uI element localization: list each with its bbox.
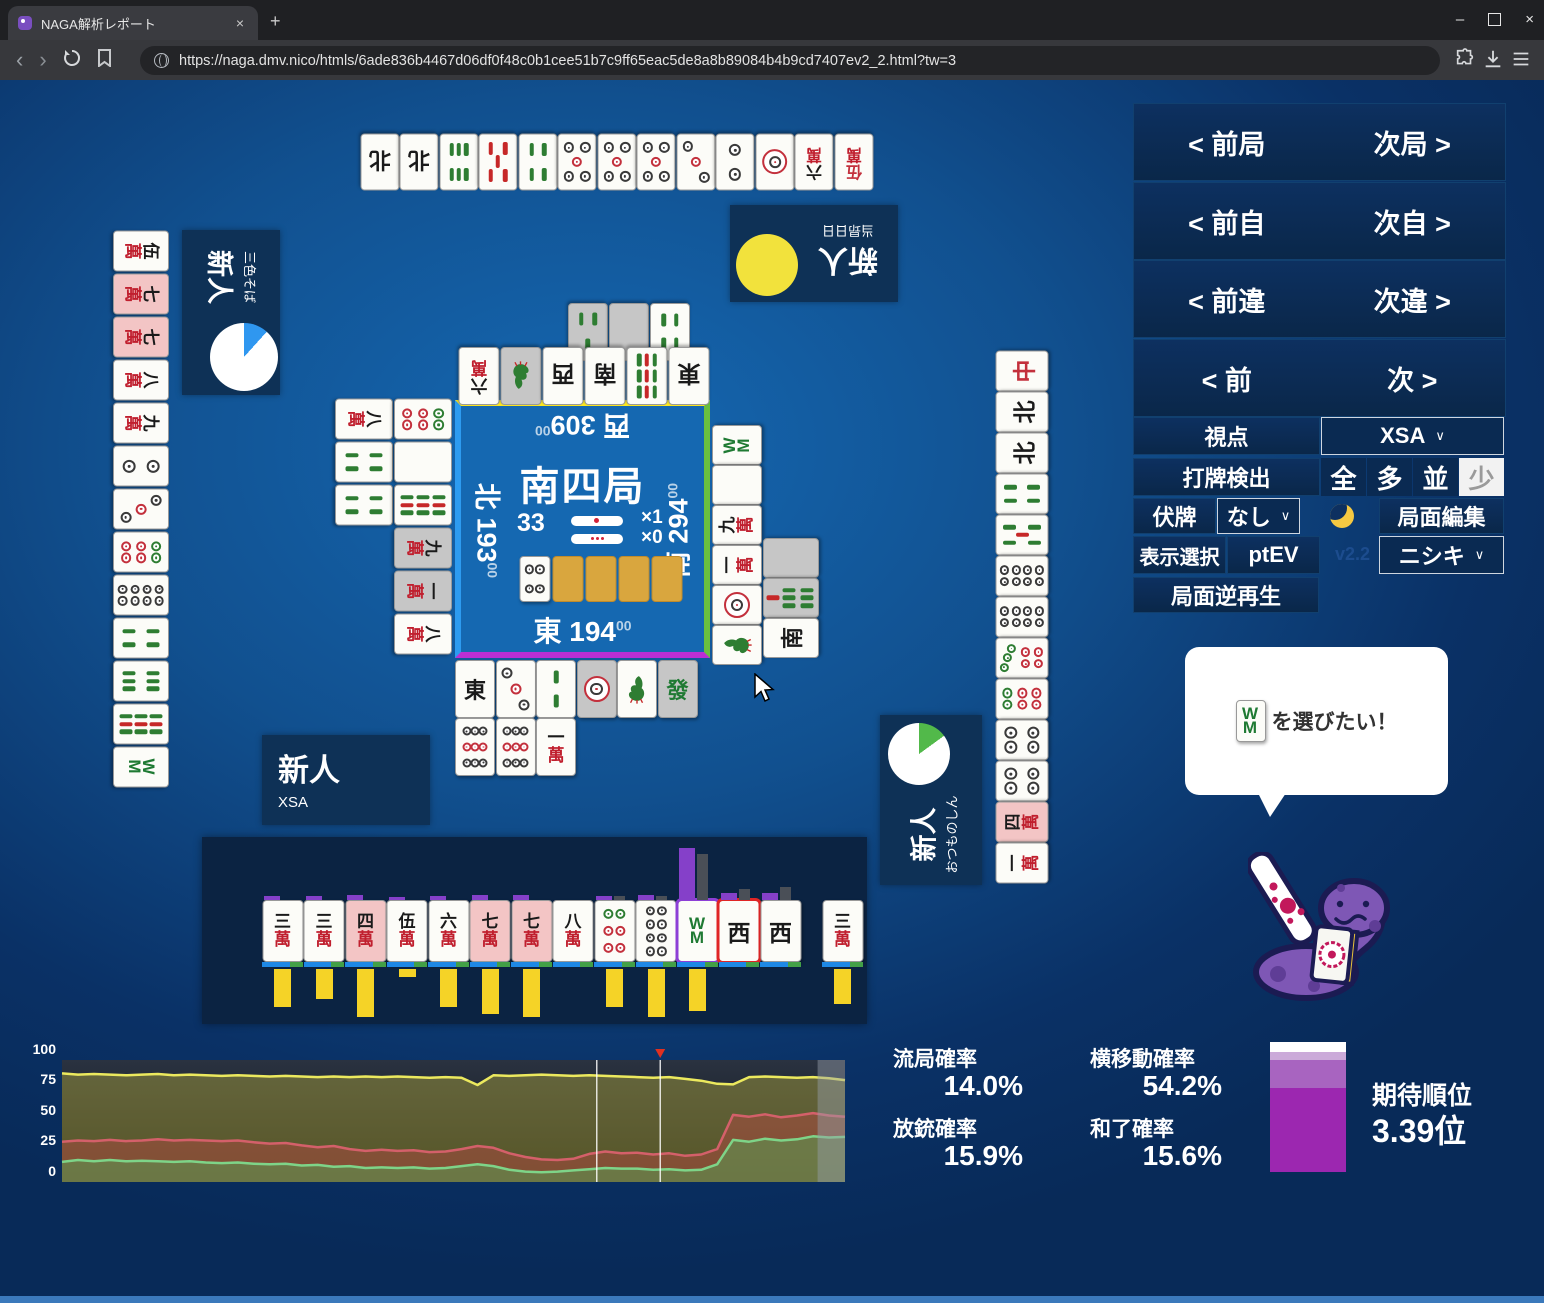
discard-probability-bar (399, 969, 416, 977)
player-top-label: 新人 当昻日日 (730, 205, 898, 302)
player-self-label: 新人 XSA (262, 735, 430, 825)
tile-underline-indicator (719, 962, 760, 967)
edit-position-button[interactable]: 局面編集 (1379, 498, 1504, 534)
mahjong-tile-9m: 九萬 (394, 527, 452, 568)
tile-underline-indicator (387, 962, 428, 967)
naga-comment-bubble: WM を選びたい！ (1185, 647, 1448, 795)
back-icon[interactable]: ‹ (16, 49, 23, 71)
mahjong-tile-5p (597, 133, 636, 190)
tile-underline-indicator (594, 962, 635, 967)
mahjong-tile-4s (518, 133, 557, 190)
address-bar[interactable]: https://naga.dmv.nico/htmls/6ade836b4467… (140, 46, 1440, 75)
center-info-panel: 西 30900 北 19300 南 29400 東 19400 南四局 33 ×… (455, 400, 710, 658)
alt-rate-bar (780, 887, 791, 900)
mahjong-tile-9s (626, 347, 667, 405)
discard-probability-bar (689, 969, 706, 1011)
tile-underline-indicator (470, 962, 511, 967)
alt-rate-bar (614, 896, 625, 900)
ryukyoku-label: 流局確率 (893, 1043, 977, 1073)
mahjong-tile-back (651, 556, 682, 602)
self-hand-tile-8s[interactable]: WM (677, 900, 718, 962)
mahjong-tile-8m: 八萬 (394, 613, 452, 654)
player-right-name: 新人 (902, 808, 941, 862)
ptev-button[interactable]: ptEV (1227, 536, 1320, 574)
discard-probability-bar (274, 969, 291, 1007)
mahjong-tile-4s (335, 441, 393, 482)
riichi-stick-100-icon (571, 530, 623, 548)
mahjong-tile-1p (755, 133, 794, 190)
naga-rate-bar (596, 896, 612, 900)
mahjong-tile-7s (763, 578, 819, 618)
tile-underline-indicator (553, 962, 594, 967)
next-kyoku-button[interactable]: 次局 > (1320, 123, 1506, 162)
mahjong-tile-S: 南 (763, 618, 819, 658)
yokoido-label: 横移動確率 (1090, 1043, 1195, 1073)
mahjong-tile-E: 東 (668, 347, 709, 405)
discard-probability-bar (482, 969, 499, 1014)
fusehai-label: 伏牌 (1133, 498, 1216, 534)
mouse-cursor (753, 673, 775, 703)
mahjong-tile-9m: 九萬 (113, 402, 169, 443)
bubble-tail (1258, 793, 1286, 817)
window-maximize-button[interactable] (1488, 13, 1501, 26)
discard-probability-bar (648, 969, 665, 1017)
tile-underline-indicator (304, 962, 345, 967)
naga-rate-bar (638, 895, 654, 900)
reload-icon[interactable] (63, 49, 81, 71)
extensions-icon[interactable] (1454, 48, 1478, 72)
player-top-name: 新人 (818, 241, 878, 285)
browser-tab-bar: NAGA解析レポート × + – × (0, 0, 1544, 40)
tab-close-icon[interactable]: × (232, 15, 248, 31)
discard-probability-bar (523, 969, 540, 1017)
mahjong-tile-5p (558, 133, 597, 190)
mahjong-tile-6p (113, 531, 169, 572)
naga-favicon (18, 16, 32, 30)
mahjong-tile-2s (536, 660, 576, 718)
naga-rate-bar (389, 897, 405, 900)
player-top-username: 当昻日日 (822, 222, 874, 241)
chart-y-tick: 0 (20, 1163, 56, 1179)
mahjong-tile-9m: 九萬 (712, 505, 762, 545)
self-hand-tile-W[interactable]: 西 (760, 900, 801, 962)
chart-y-tick: 100 (20, 1041, 56, 1057)
mahjong-tile-2p (113, 445, 169, 486)
bookmark-icon[interactable] (97, 49, 112, 71)
display-select-label: 表示選択 (1133, 536, 1226, 574)
nav-step-row: < 前 次 > (1133, 339, 1506, 417)
discard-probability-bar (606, 969, 623, 1007)
mahjong-tile-0m: 伍萬 (834, 133, 873, 190)
self-hand-tile-7m[interactable]: 七萬 (511, 900, 552, 962)
round-label: 南四局 (461, 454, 704, 512)
mahjong-tile-8p (113, 574, 169, 615)
prev-kyoku-button[interactable]: < 前局 (1134, 123, 1320, 162)
riichi-stick-1000-count: ×1 (641, 507, 663, 529)
mahjong-tile-3p (496, 660, 536, 718)
dahai-detect-label: 打牌検出 (1133, 458, 1320, 496)
viewpoint-select[interactable]: XSA∨ (1321, 417, 1504, 455)
mahjong-tile-4s (113, 617, 169, 658)
tile-underline-indicator (262, 962, 303, 967)
mahjong-tile-blankW (394, 441, 452, 482)
prev-self-turn-button[interactable]: < 前自 (1134, 202, 1320, 241)
mahjong-tile-back (618, 556, 649, 602)
tile-underline-indicator (760, 962, 801, 967)
model-select[interactable]: ニシキ∨ (1379, 536, 1504, 574)
chart-y-tick: 50 (20, 1102, 56, 1118)
naga-report-main: 西 30900 北 19300 南 29400 東 19400 南四局 33 ×… (0, 80, 1544, 1303)
discard-probability-bar (834, 969, 851, 1004)
prev-mismatch-button[interactable]: < 前違 (1134, 280, 1320, 319)
dahai-option-few[interactable]: 少 (1459, 458, 1504, 496)
mahjong-tile-1s (712, 625, 762, 665)
mahjong-tile-6m: 六萬 (795, 133, 834, 190)
rank-bar-segment (1270, 1060, 1346, 1088)
self-hand-tile-W[interactable]: 西 (719, 900, 760, 962)
mahjong-tile-7m: 七萬 (113, 316, 169, 357)
dahai-option-all[interactable]: 全 (1321, 458, 1366, 496)
chevron-down-icon: ∨ (1435, 428, 1445, 444)
mahjong-tile-1m: 一萬 (712, 545, 762, 585)
mahjong-tile-4m: 四萬 (995, 801, 1048, 842)
mahjong-tile-8m: 八萬 (335, 398, 393, 439)
mahjong-tile-8p (995, 555, 1048, 596)
mahjong-tile-4p (995, 719, 1048, 760)
mahjong-tile-blankW (712, 465, 762, 505)
chart-y-tick: 75 (20, 1071, 56, 1087)
discard-probability-bar (357, 969, 374, 1017)
nav-self-turn-row: < 前自 次自 > (1133, 182, 1506, 260)
mahjong-tile-6s (113, 660, 169, 701)
mahjong-tile-8m: 八萬 (113, 359, 169, 400)
downloads-icon[interactable] (1482, 48, 1506, 72)
mahjong-tile-5p (637, 133, 676, 190)
recommended-tile-icon: WM (1236, 700, 1266, 742)
nav-kyoku-row: < 前局 次局 > (1133, 103, 1506, 181)
player-right-pie-chart (888, 723, 950, 785)
browser-tab[interactable]: NAGA解析レポート × (8, 6, 258, 40)
mahjong-tile-3p (113, 488, 169, 529)
self-hand-tile-3m[interactable]: 三萬 (304, 900, 345, 962)
expected-rank-bar (1270, 1042, 1346, 1172)
mahjong-tile-7m: 七萬 (113, 273, 169, 314)
chevron-down-icon: ∨ (1281, 508, 1291, 524)
mahjong-tile-8s: WM (1236, 700, 1266, 742)
mahjong-tile-0s (479, 133, 518, 190)
mahjong-tile-1m: 一萬 (394, 570, 452, 611)
mahjong-tile-1s (617, 660, 657, 718)
player-self-username: XSA (278, 794, 430, 811)
chevron-down-icon: ∨ (1475, 547, 1485, 563)
mahjong-tile-1m: 一萬 (995, 842, 1048, 883)
bottom-accent-strip (0, 1296, 1544, 1303)
mahjong-tile-9s (394, 484, 452, 525)
mahjong-tile-1p (712, 585, 762, 625)
hora-value: 15.6% (1072, 1140, 1222, 1172)
mahjong-tile-W: 西 (542, 347, 583, 405)
new-tab-button[interactable]: + (270, 12, 281, 30)
player-left-name: 新人 (202, 250, 241, 304)
mahjong-tile-6s (439, 133, 478, 190)
riichi-stick-1000-icon (571, 512, 623, 530)
mahjong-tile-N: 北 (360, 133, 399, 190)
player-right-label: 新人 おつものしん (880, 715, 982, 885)
player-right-username: おつものしん (941, 796, 960, 874)
mahjong-tile-2p (716, 133, 755, 190)
rank-bar-segment (1270, 1088, 1346, 1172)
naga-rate-bar (472, 895, 488, 900)
mahjong-tile-7p (995, 637, 1048, 678)
next-self-turn-button[interactable]: 次自 > (1320, 202, 1506, 241)
expected-rank-value: 3.39位 (1372, 1106, 1466, 1152)
mahjong-tile-N: 北 (995, 432, 1048, 473)
viewpoint-label: 視点 (1133, 417, 1320, 455)
fusehai-select[interactable]: なし∨ (1217, 498, 1300, 534)
mahjong-tile-F: 發 (658, 660, 698, 718)
naga-rate-bar (264, 896, 280, 900)
mahjong-tile-C: 中 (995, 350, 1048, 391)
dahai-option-many[interactable]: 多 (1367, 458, 1412, 496)
self-hand-tile-3m[interactable]: 三萬 (262, 900, 303, 962)
dahai-option-normal[interactable]: 並 (1413, 458, 1458, 496)
hoju-label: 放銃確率 (893, 1113, 977, 1143)
self-hand-tile-8m[interactable]: 八萬 (553, 900, 594, 962)
self-hand-panel: 三萬三萬四萬伍萬六萬七萬七萬八萬WM西西三萬 (202, 837, 867, 1024)
url-text: https://naga.dmv.nico/htmls/6ade836b4467… (179, 53, 956, 69)
alt-rate-bar (697, 854, 708, 900)
naga-rate-bar (721, 893, 737, 900)
mahjong-tile-4p (995, 760, 1048, 801)
naga-rate-bar (430, 896, 446, 900)
nav-mismatch-row: < 前違 次違 > (1133, 260, 1506, 338)
next-mismatch-button[interactable]: 次違 > (1320, 280, 1506, 319)
version-text: v2.2 (1335, 544, 1370, 565)
mahjong-tile-6p (394, 398, 452, 439)
window-close-button[interactable]: × (1525, 11, 1534, 28)
player-top-pie-chart (736, 234, 798, 296)
mahjong-tile-E: 東 (455, 660, 495, 718)
discard-probability-bar (440, 969, 457, 1007)
player-left-pie-chart (210, 323, 278, 391)
naga-mascot (1248, 852, 1400, 1007)
hora-label: 和了確率 (1090, 1113, 1174, 1143)
probability-chart[interactable] (62, 1048, 845, 1170)
alt-rate-bar (739, 889, 750, 900)
mahjong-tile-9p (496, 718, 536, 776)
ryukyoku-value: 14.0% (873, 1070, 1023, 1102)
mahjong-tile-8s: WM (712, 425, 762, 465)
self-hand-tile-3m[interactable]: 三萬 (822, 900, 863, 962)
mahjong-tile-1p (577, 660, 617, 718)
tile-underline-indicator (822, 962, 863, 967)
mahjong-tile-8s: WM (113, 746, 169, 787)
tile-underline-indicator (345, 962, 386, 967)
tile-underline-indicator (511, 962, 552, 967)
mahjong-tile-N: 北 (400, 133, 439, 190)
window-minimize-button[interactable]: – (1456, 11, 1464, 28)
riichi-stick-100-count: ×0 (641, 527, 663, 549)
reverse-replay-button[interactable]: 局面逆再生 (1133, 577, 1319, 613)
naga-rate-bar (762, 893, 778, 900)
player-left-label: 三色そば 新人 (182, 230, 280, 395)
rank-bar-segment (1270, 1052, 1346, 1060)
prev-step-button[interactable]: < 前 (1134, 359, 1320, 398)
naga-rate-bar (679, 848, 695, 900)
self-hand-tile-8p[interactable] (636, 900, 677, 962)
mahjong-tile-4s (335, 484, 393, 525)
bubble-text: を選びたい！ (1272, 706, 1398, 736)
rank-bar-segment (1270, 1042, 1346, 1052)
mahjong-tile-S: 南 (584, 347, 625, 405)
east-score: 東 19400 (461, 610, 704, 650)
site-info-icon[interactable] (154, 53, 169, 68)
self-hand-tile-5m[interactable]: 伍萬 (387, 900, 428, 962)
mahjong-tile-1m: 一萬 (536, 718, 576, 776)
naga-rate-bar (347, 895, 363, 900)
menu-icon[interactable] (1510, 48, 1534, 72)
dora-indicator-row (519, 556, 699, 606)
mahjong-tile-blankG (763, 538, 819, 578)
player-self-name: 新人 (278, 745, 430, 790)
player-left-username: 三色そば (241, 251, 260, 303)
hoju-value: 15.9% (873, 1140, 1023, 1172)
tile-underline-indicator (428, 962, 469, 967)
tab-title: NAGA解析レポート (41, 14, 232, 33)
mahjong-tile-5s (995, 514, 1048, 555)
mahjong-tile-8p (995, 596, 1048, 637)
chart-y-tick: 25 (20, 1132, 56, 1148)
mahjong-tile-9s (113, 703, 169, 744)
dark-mode-moon-icon[interactable] (1330, 504, 1354, 528)
self-hand-tile-6p[interactable] (594, 900, 635, 962)
self-hand-tile-6m[interactable]: 六萬 (428, 900, 469, 962)
mahjong-tile-N: 北 (995, 391, 1048, 432)
self-hand-tile-7m[interactable]: 七萬 (470, 900, 511, 962)
mahjong-tile-5m: 伍萬 (113, 230, 169, 271)
mahjong-tile-4s (995, 473, 1048, 514)
mahjong-tile-back (585, 556, 616, 602)
tile-underline-indicator (677, 962, 718, 967)
mahjong-tile-4p (519, 556, 550, 602)
mahjong-tile-3p (676, 133, 715, 190)
next-step-button[interactable]: 次 > (1320, 359, 1506, 398)
forward-icon[interactable]: › (39, 49, 46, 71)
tile-underline-indicator (636, 962, 677, 967)
mahjong-tile-back (552, 556, 583, 602)
wall-count: 33 (517, 509, 545, 538)
discard-probability-bar (316, 969, 333, 999)
self-hand-tile-4m[interactable]: 四萬 (345, 900, 386, 962)
mahjong-tile-6p (995, 678, 1048, 719)
naga-rate-bar (513, 895, 529, 900)
mahjong-tile-9p (455, 718, 495, 776)
naga-rate-bar (306, 896, 322, 900)
alt-rate-bar (656, 896, 667, 900)
mahjong-tile-1s (500, 347, 541, 405)
mahjong-tile-6m: 六萬 (458, 347, 499, 405)
yokoido-value: 54.2% (1072, 1070, 1222, 1102)
